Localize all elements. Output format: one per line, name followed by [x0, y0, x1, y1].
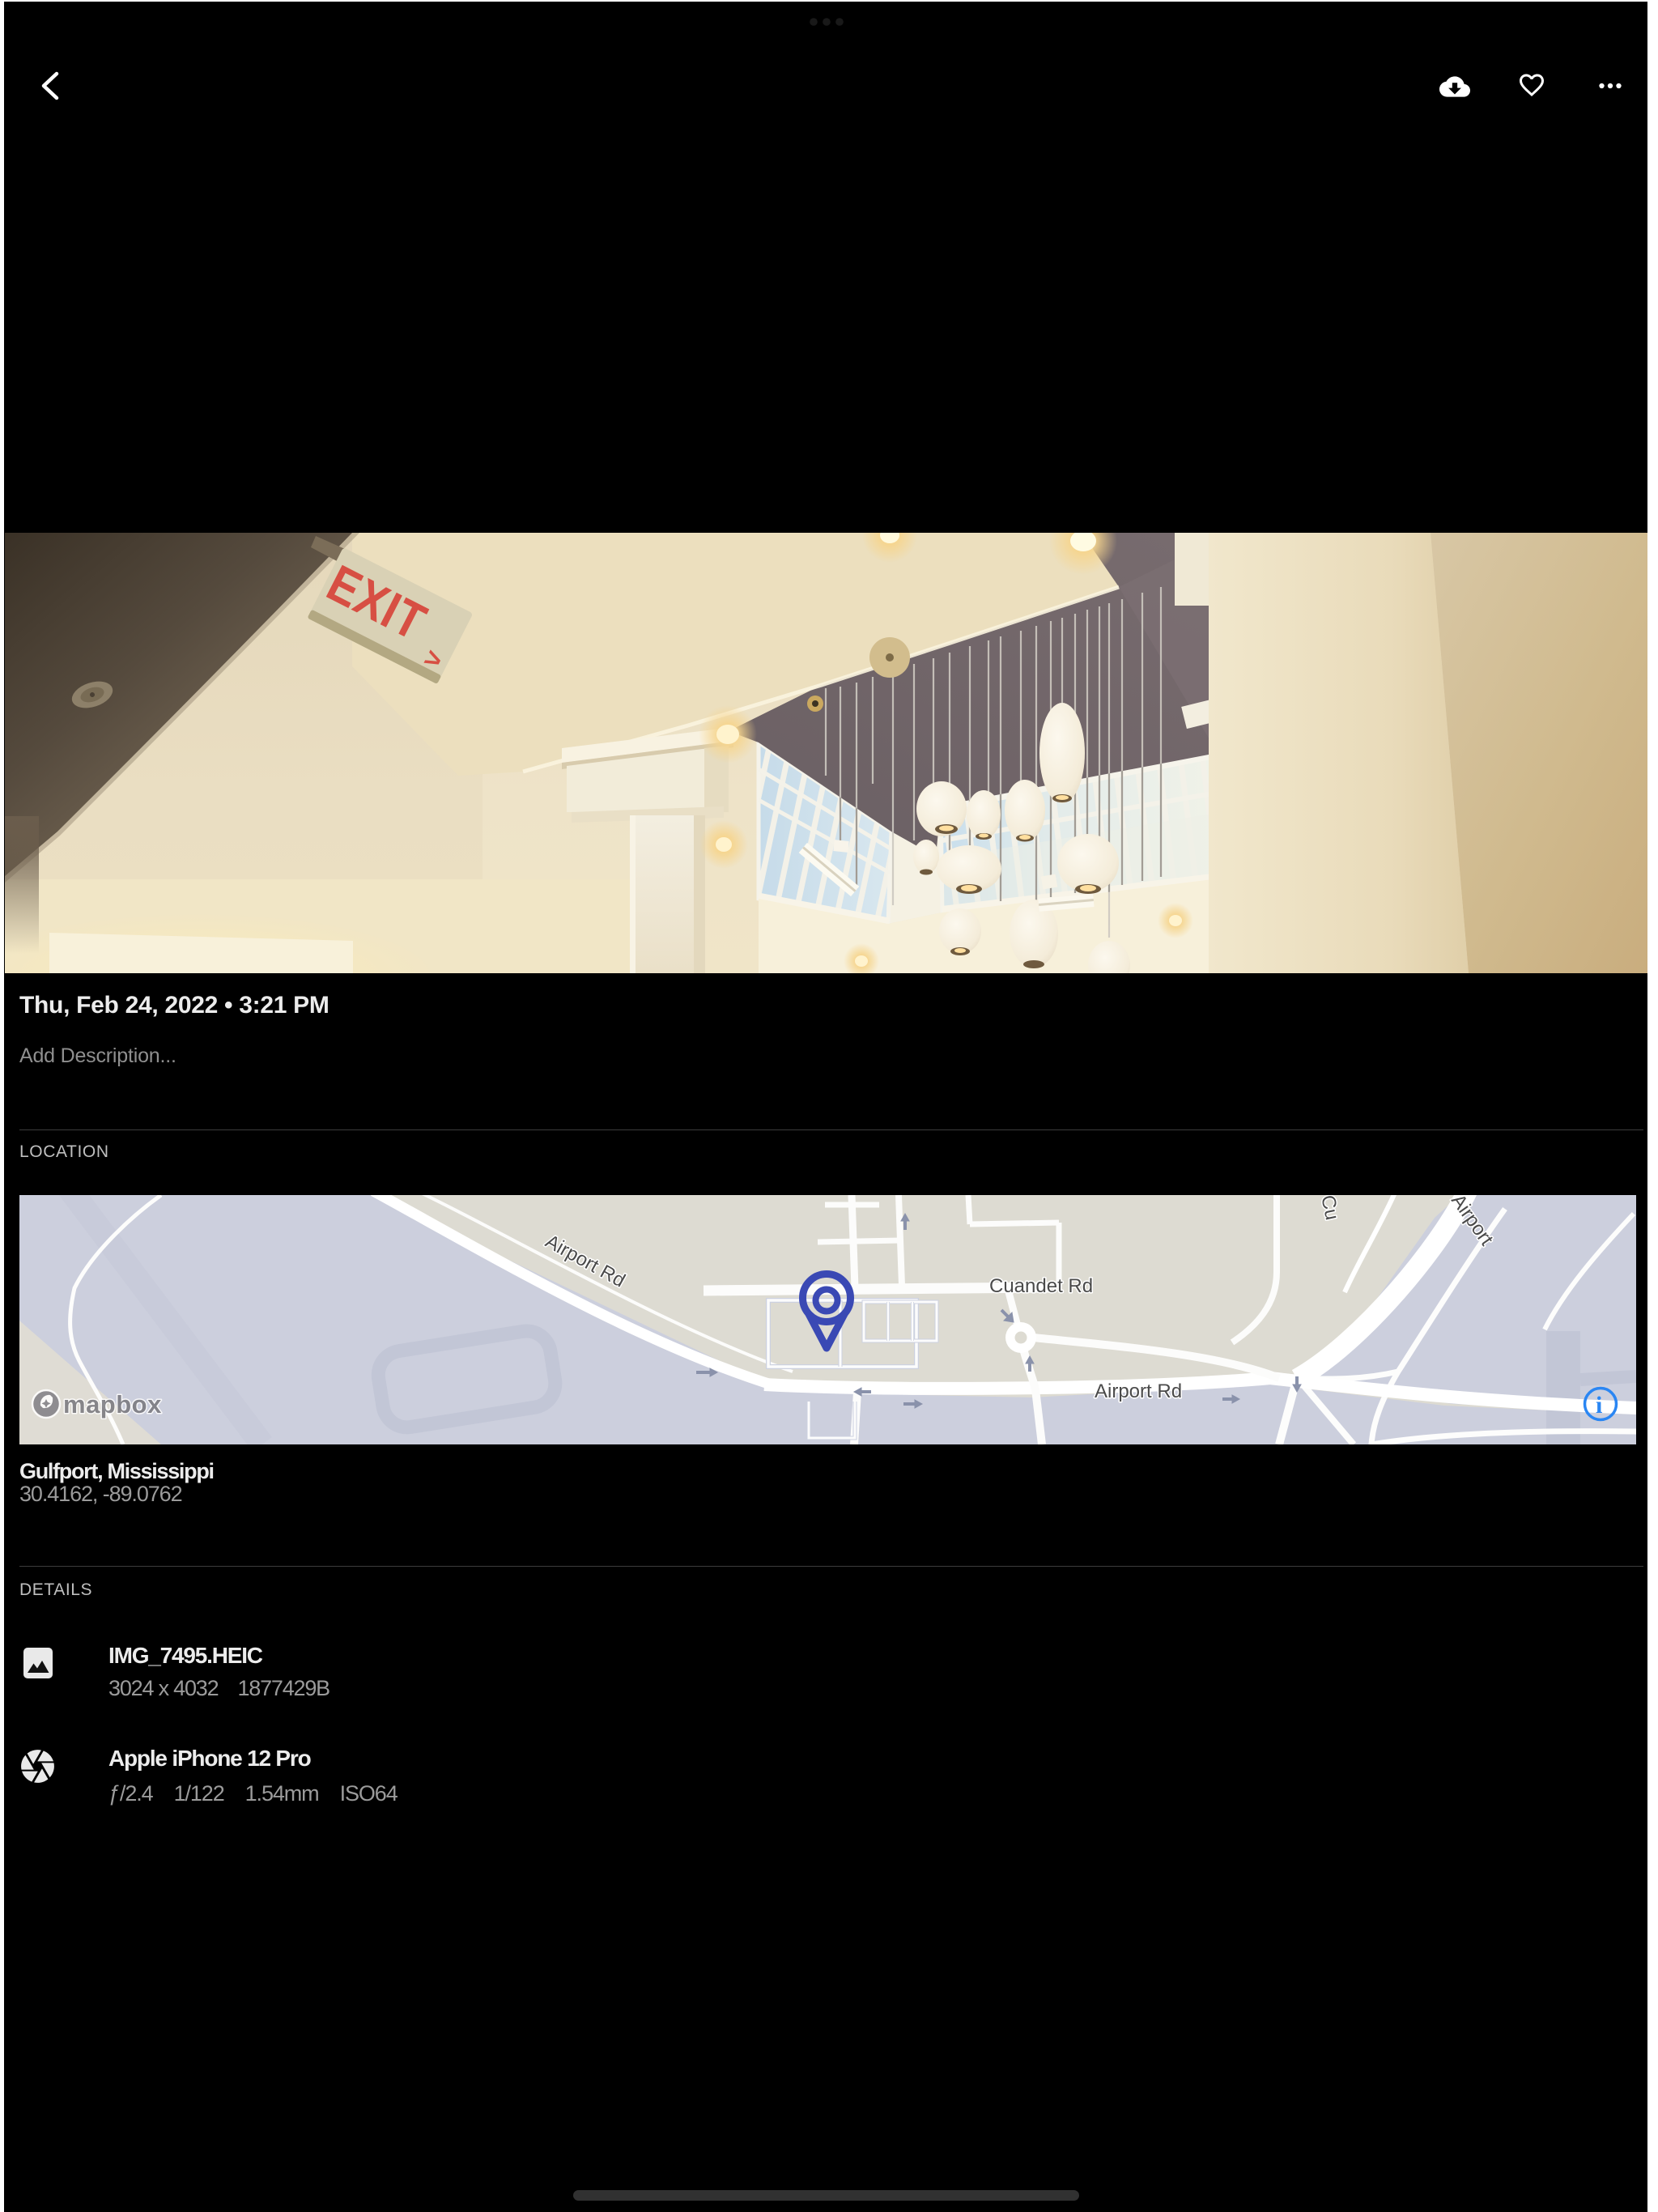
svg-text:Airport Rd: Airport Rd	[1095, 1380, 1182, 1402]
svg-text:Cuandet Rd: Cuandet Rd	[989, 1275, 1093, 1297]
svg-text:mapbox: mapbox	[63, 1390, 162, 1419]
svg-text:i: i	[1596, 1392, 1602, 1419]
